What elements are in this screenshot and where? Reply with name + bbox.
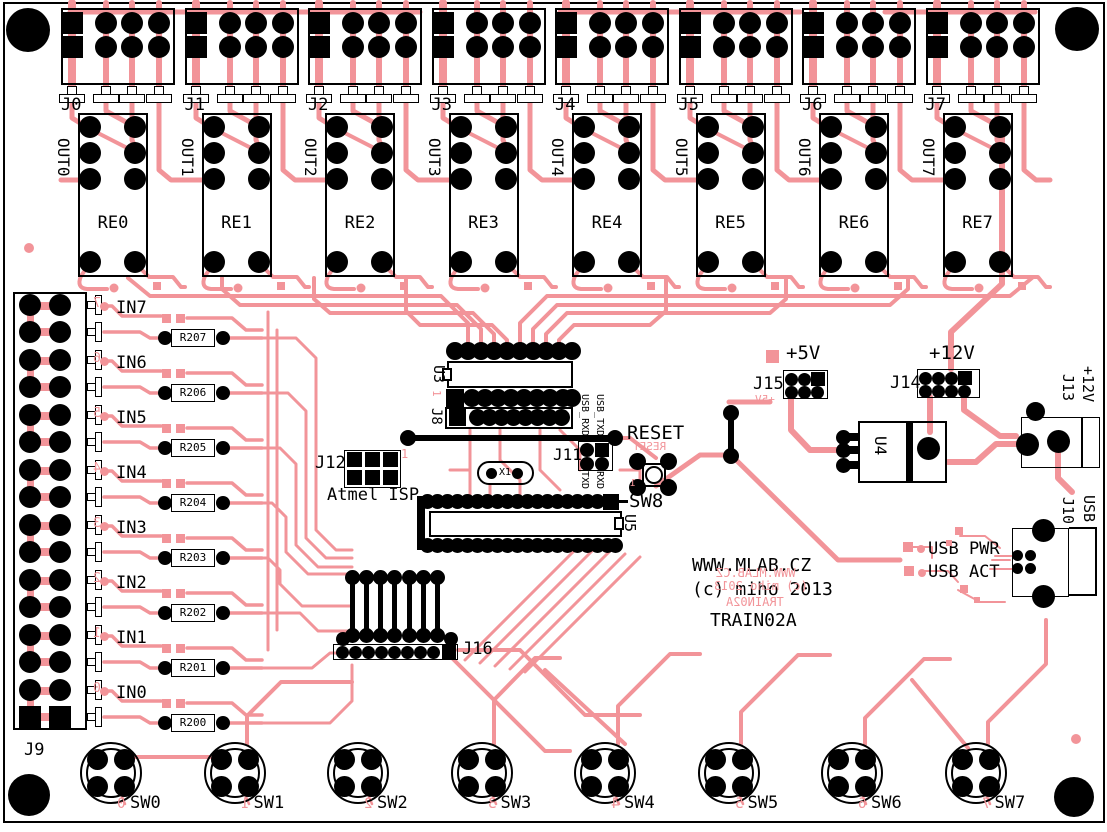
jumper-end (416, 570, 431, 585)
pad (865, 142, 887, 164)
j13-ref: J13 (1060, 374, 1075, 401)
pad (219, 36, 241, 58)
output-channel: J7 RE7 OUT7 (926, 0, 1050, 310)
pad (326, 142, 348, 164)
pad (798, 373, 811, 386)
pad (401, 646, 414, 659)
pad (19, 651, 41, 673)
pad (581, 776, 602, 797)
pad-square (679, 36, 701, 58)
pad-square-pin1 (603, 494, 619, 510)
terminal (764, 94, 790, 103)
pad (1016, 433, 1039, 456)
terminal (95, 432, 102, 452)
pad (148, 12, 170, 34)
connector-ref: J4 (555, 97, 575, 114)
connector-ref: J0 (61, 97, 81, 114)
pad (573, 142, 595, 164)
pad (889, 12, 911, 34)
pad (450, 251, 472, 273)
pad (121, 36, 143, 58)
switch-mirror-digit-text: 4 (611, 797, 619, 811)
pad (865, 251, 887, 273)
switch-unit: 5 SW5 (679, 742, 803, 832)
pad (458, 749, 479, 770)
output-channel: J6 RE6 OUT6 (802, 0, 926, 310)
j12-description: Atmel ISP (327, 487, 419, 504)
switch-unit: 3 SW3 (432, 742, 556, 832)
usb-act-label: USB ACT (928, 564, 1000, 581)
v12-label: +12V (929, 344, 975, 363)
j10-outline-line (1069, 594, 1097, 596)
pad (248, 251, 270, 273)
pad (828, 749, 849, 770)
pad (248, 168, 270, 190)
pad (95, 36, 117, 58)
terminal (517, 94, 543, 103)
switch-mirror-digit-text: 6 (858, 797, 866, 811)
pad (19, 431, 41, 453)
board-copyright-mirror: (c) miho 2013 (714, 580, 808, 592)
pad (124, 142, 146, 164)
terminal (711, 94, 737, 103)
pad-square-pin1 (958, 371, 972, 385)
pad-square (926, 12, 948, 34)
led-pad (918, 569, 926, 577)
pad (952, 776, 973, 797)
pad (820, 168, 842, 190)
pad (615, 12, 637, 34)
jumper-end (387, 628, 402, 643)
pad (862, 12, 884, 34)
pad (361, 749, 382, 770)
pad (124, 168, 146, 190)
wire-jumper (421, 580, 426, 635)
j11-net-txd: TXD (579, 471, 589, 489)
pad (785, 373, 798, 386)
pad (248, 116, 270, 138)
resistor: R207 (171, 329, 215, 347)
pad (713, 12, 735, 34)
pad (512, 468, 523, 479)
terminal (587, 94, 613, 103)
pad (485, 749, 506, 770)
u3-ic-box (447, 361, 573, 388)
terminal (1011, 94, 1037, 103)
switch-mirror-digit-text: 5 (735, 797, 743, 811)
terminal (119, 94, 145, 103)
pad (615, 36, 637, 58)
pad-square (432, 12, 454, 34)
terminal (146, 94, 172, 103)
pad (466, 12, 488, 34)
u4-ref: U4 (872, 436, 888, 455)
pad (388, 646, 401, 659)
pad-square (555, 36, 577, 58)
pad (49, 294, 71, 316)
switch-mirror-digit-text: 7 (982, 797, 990, 811)
pad (581, 749, 602, 770)
pad (820, 251, 842, 273)
pad (158, 551, 172, 565)
wire-jumper (407, 580, 412, 635)
pad (19, 541, 41, 563)
smd-pad (960, 585, 968, 593)
smd-pad (766, 350, 779, 363)
j9-ref: J9 (24, 742, 44, 759)
jumper-end (400, 430, 416, 446)
connector-ref: J2 (308, 97, 328, 114)
via-dot (1071, 734, 1081, 744)
switch-unit: 2 SW2 (308, 742, 432, 832)
pad (362, 646, 375, 659)
jumper-end (430, 628, 445, 643)
pad (87, 749, 108, 770)
mounting-hole (1054, 777, 1094, 817)
pad (121, 12, 143, 34)
pad (342, 36, 364, 58)
pad (245, 36, 267, 58)
pad (732, 749, 753, 770)
pad-square (802, 12, 824, 34)
switch-mirror-digit: 1 (241, 797, 249, 811)
pad (216, 441, 230, 455)
jumper-end (430, 570, 445, 585)
pad (495, 142, 517, 164)
pad (458, 776, 479, 797)
pad (766, 12, 788, 34)
pad (989, 251, 1011, 273)
j11-ref: J11 (553, 447, 582, 463)
pad (919, 385, 932, 398)
input-channel: 3 IN3 R203 (0, 520, 360, 575)
input-net-label: IN7 (116, 300, 147, 317)
pad (642, 12, 664, 34)
pad (697, 251, 719, 273)
pad (49, 376, 71, 398)
switch-unit: 1 SW1 (185, 742, 309, 832)
pad (811, 386, 824, 399)
switch-ref: SW3 (501, 795, 532, 812)
terminal (984, 94, 1010, 103)
pcb-layout-train02a: J0 RE0 OUT0 (0, 0, 1107, 832)
output-net-label: OUT6 (796, 138, 812, 177)
pad (148, 36, 170, 58)
output-net-label: OUT4 (549, 138, 565, 177)
j11-net-rxd: RXD (594, 471, 604, 489)
terminal (366, 94, 392, 103)
pad (1012, 563, 1023, 574)
switch-unit: 4 SW4 (555, 742, 679, 832)
pad-square-pin1 (442, 645, 456, 659)
pad (124, 251, 146, 273)
input-channel: 2 IN2 R202 (0, 575, 360, 630)
pad (553, 409, 570, 426)
pad (334, 776, 355, 797)
jumper-end (359, 628, 374, 643)
pad (713, 36, 735, 58)
output-net-label: OUT7 (920, 138, 936, 177)
pad (368, 12, 390, 34)
j11-net-usb-rxd: USB_RXD (579, 394, 589, 436)
input-channel: 5 IN5 R205 (0, 410, 360, 465)
pad (989, 142, 1011, 164)
pad (989, 116, 1011, 138)
pad (855, 749, 876, 770)
resistor: R200 (171, 714, 215, 732)
pad (79, 142, 101, 164)
output-net-label: OUT5 (673, 138, 689, 177)
pad (466, 36, 488, 58)
jumper-end (723, 405, 739, 421)
silk-dot (100, 302, 109, 311)
pad (450, 142, 472, 164)
pad (49, 321, 71, 343)
pad (158, 606, 172, 620)
pad (371, 142, 393, 164)
pad (371, 116, 393, 138)
terminal (640, 94, 666, 103)
pad (820, 142, 842, 164)
pad (158, 441, 172, 455)
pad (492, 12, 514, 34)
pad (19, 596, 41, 618)
relay-ref: RE0 (78, 215, 148, 232)
pad (211, 749, 232, 770)
pad (203, 168, 225, 190)
switch-mirror-digit-text: 3 (488, 797, 496, 811)
terminal (340, 94, 366, 103)
pad (272, 12, 294, 34)
jumper-end (373, 570, 388, 585)
led-pad (917, 545, 925, 553)
pad (450, 168, 472, 190)
jumper-end (402, 570, 417, 585)
board-copyright-mirror-text: (c) miho 2013 (714, 580, 808, 592)
pad (589, 12, 611, 34)
u3-ref: U3 (431, 365, 446, 383)
pad (238, 749, 259, 770)
pad (836, 36, 858, 58)
pad-square (347, 470, 362, 485)
pad (19, 376, 41, 398)
pad (563, 342, 581, 360)
input-net-label: IN5 (116, 410, 147, 427)
board-url-mirror: WWW.MLAB.CZ (716, 567, 795, 579)
pad (49, 651, 71, 673)
pad (495, 251, 517, 273)
switch-mirror-digit: 0 (117, 797, 125, 811)
pad (427, 646, 440, 659)
terminal (95, 652, 102, 672)
pad (248, 142, 270, 164)
silk-dot (100, 632, 109, 641)
pad (158, 661, 172, 675)
pad (945, 385, 958, 398)
input-net-label: IN6 (116, 355, 147, 372)
wire-jumper (364, 580, 369, 635)
jumper-end (723, 448, 739, 464)
pad (216, 496, 230, 510)
pad (766, 36, 788, 58)
pad (492, 36, 514, 58)
j10-outline-line (1069, 527, 1097, 529)
led-pad (903, 542, 913, 552)
pad (336, 646, 349, 659)
terminal (217, 94, 243, 103)
pad (495, 116, 517, 138)
terminal (393, 94, 419, 103)
pad-square (185, 12, 207, 34)
mounting-hole (8, 774, 50, 816)
sw8-pin1-marker: 1 (630, 479, 636, 489)
reset-mirror-label: RESET (633, 441, 666, 452)
pad (979, 749, 1000, 770)
switch-mirror-digit: 3 (488, 797, 496, 811)
pad (820, 116, 842, 138)
pad-square (365, 452, 380, 467)
pad (211, 776, 232, 797)
pad (944, 251, 966, 273)
pad (326, 116, 348, 138)
mounting-hole (6, 8, 50, 52)
pad (697, 142, 719, 164)
pad (1013, 36, 1035, 58)
pad (742, 168, 764, 190)
pad (414, 646, 427, 659)
connector-ref: J7 (926, 97, 946, 114)
pad (573, 116, 595, 138)
terminal (95, 542, 102, 562)
input-net-label: IN2 (116, 575, 147, 592)
pad (932, 372, 945, 385)
output-net-label: OUT0 (55, 138, 71, 177)
switch-mirror-digit: 6 (858, 797, 866, 811)
wire-jumper (378, 580, 383, 635)
pad (216, 716, 230, 730)
pad (618, 142, 640, 164)
terminal (95, 377, 102, 397)
u5-ic-box (429, 511, 622, 537)
pad (739, 12, 761, 34)
jumper-end (345, 570, 360, 585)
pad (705, 776, 726, 797)
terminal (613, 94, 639, 103)
v5-mirror-label: +5V (755, 394, 775, 405)
board-name: TRAIN02A (710, 612, 797, 630)
pad (618, 116, 640, 138)
pad-square (383, 470, 398, 485)
pad-square (185, 36, 207, 58)
silk-dot (100, 412, 109, 421)
pad (865, 116, 887, 138)
pad-square (365, 470, 380, 485)
relay-ref: RE5 (696, 215, 766, 232)
jumper-end (402, 628, 417, 643)
connector-ref: J1 (185, 97, 205, 114)
pad (697, 116, 719, 138)
pad (986, 36, 1008, 58)
pad (450, 116, 472, 138)
pad (219, 12, 241, 34)
pad (371, 168, 393, 190)
pad (573, 251, 595, 273)
pad (580, 457, 594, 471)
pad (349, 646, 362, 659)
smd-pad (946, 540, 952, 546)
input-channel: 4 IN4 R204 (0, 465, 360, 520)
pad (828, 776, 849, 797)
pad (1026, 402, 1045, 421)
pad (742, 116, 764, 138)
pad (158, 386, 172, 400)
pad (334, 749, 355, 770)
terminal (270, 94, 296, 103)
terminal (958, 94, 984, 103)
pad (618, 251, 640, 273)
pad (960, 36, 982, 58)
usb-pwr-label: USB PWR (928, 541, 1000, 558)
sw8-pin1-text: 1 (630, 479, 636, 489)
terminal (95, 322, 102, 342)
pad (836, 458, 851, 473)
v5-mirror-text: +5V (755, 394, 775, 405)
pad (19, 321, 41, 343)
pad (739, 36, 761, 58)
pad (785, 386, 798, 399)
pad (697, 168, 719, 190)
switch-mirror-digit-text: 1 (241, 797, 249, 811)
pad (1025, 563, 1036, 574)
wire-jumper (392, 580, 397, 635)
input-channel: 6 IN6 R206 (0, 355, 360, 410)
relay-ref: RE1 (202, 215, 272, 232)
pad (95, 12, 117, 34)
input-channel: 7 IN7 R207 (0, 300, 360, 355)
switch-mirror-digit: 4 (611, 797, 619, 811)
pad-square (61, 36, 83, 58)
j12-ref: J12 (315, 455, 346, 472)
pad (79, 251, 101, 273)
terminal (243, 94, 269, 103)
pad-square-pin1 (449, 409, 466, 426)
relay-ref: RE4 (572, 215, 642, 232)
terminal (95, 487, 102, 507)
relay-ref: RE6 (819, 215, 889, 232)
u3-pin1-marker: 1 (431, 390, 442, 397)
switch-mirror-digit-text: 0 (117, 797, 125, 811)
pad (919, 372, 932, 385)
output-channel: J3 RE3 OUT3 (432, 0, 556, 310)
terminal (887, 94, 913, 103)
smd-pad (974, 597, 980, 603)
wire-jumper (350, 580, 355, 635)
connector-ref: J5 (679, 97, 699, 114)
pad (519, 36, 541, 58)
pad (19, 486, 41, 508)
pad (932, 385, 945, 398)
switch-ref: SW6 (871, 795, 902, 812)
pad (573, 168, 595, 190)
pad (989, 168, 1011, 190)
pad (216, 386, 230, 400)
pad (87, 776, 108, 797)
pad-square (383, 452, 398, 467)
pad (495, 168, 517, 190)
output-channel: J0 RE0 OUT0 (61, 0, 185, 310)
pad (203, 251, 225, 273)
resistor: R201 (171, 659, 215, 677)
